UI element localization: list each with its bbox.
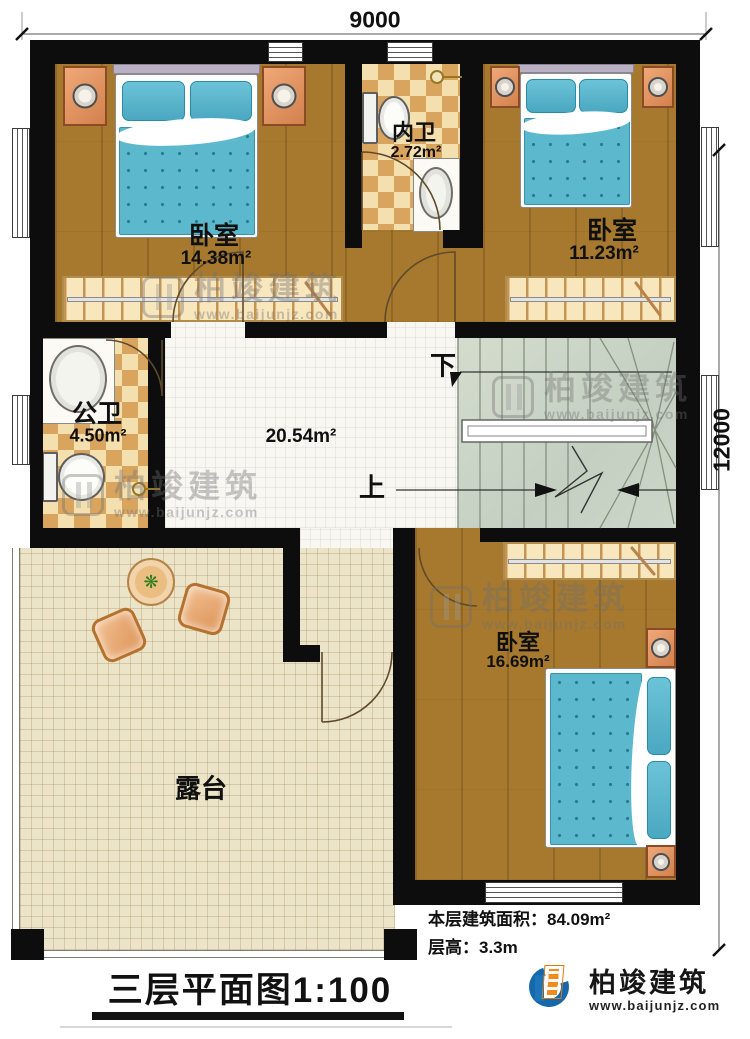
- wall-bedroom3-left: [393, 542, 415, 905]
- bed2: [520, 73, 632, 208]
- lamp-icon: [652, 853, 670, 871]
- wall-bedroom3-top-a: [393, 528, 415, 542]
- title-underline-thin: [60, 1026, 452, 1028]
- bed3-blanket: [550, 673, 642, 845]
- bed1: [115, 74, 258, 238]
- stairs-up-label: 上: [359, 468, 385, 505]
- bedroom2-wardrobe: [505, 276, 676, 322]
- terrace-post-right: [384, 929, 417, 960]
- nightstand: [642, 66, 674, 108]
- brand-website: www.baijunjz.com: [589, 998, 720, 1013]
- nightstand: [646, 628, 676, 668]
- toilet-bowl: [58, 453, 105, 501]
- bedroom1-wardrobe: [62, 276, 343, 322]
- stairwell-floor: [458, 338, 676, 528]
- window: [701, 127, 719, 247]
- lamp-icon: [495, 77, 515, 97]
- window: [387, 42, 433, 62]
- toilet-tank: [362, 92, 378, 144]
- room-label-bedroom1: 卧室: [189, 216, 239, 252]
- bed1-pillow-left: [122, 81, 185, 121]
- room-area-hall: 20.54m²: [266, 426, 337, 448]
- terrace-parapet-left: [12, 548, 20, 958]
- room-area-publicbath: 4.50m²: [69, 426, 126, 447]
- window: [268, 42, 303, 62]
- inner-bath-sink: [419, 167, 453, 219]
- bed3-pillow-top: [647, 677, 671, 755]
- terrace-parapet-bottom: [12, 950, 416, 958]
- wall-left-upper: [30, 64, 55, 322]
- room-area-bedroom3: 16.69m²: [486, 652, 549, 672]
- room-label-bedroom2: 卧室: [587, 211, 637, 247]
- drawing-title: 三层平面图1:100: [88, 962, 412, 1013]
- lamp-icon: [272, 84, 297, 109]
- floor-plan: ❋: [0, 0, 750, 1039]
- brand-logo: 柏竣建筑 www.baijunjz.com: [527, 963, 720, 1019]
- bed2-pillow-right: [579, 79, 628, 113]
- bed2-headboard: [518, 64, 634, 73]
- lamp-icon: [651, 638, 671, 658]
- dimension-height: 12000: [709, 408, 736, 472]
- wall-terrace-top: [30, 528, 300, 548]
- title-underline: [92, 1012, 404, 1020]
- bed3: [545, 668, 676, 848]
- nightstand: [63, 66, 107, 126]
- room-area-bedroom2: 11.23m²: [569, 243, 639, 265]
- nightstand: [646, 845, 676, 878]
- room-area-innerbath: 2.72m²: [391, 144, 442, 162]
- wall-bedroom2-left: [460, 64, 483, 248]
- wall-corridor-bottom: [283, 645, 320, 662]
- terrace-post-left: [11, 929, 44, 960]
- wall-top: [30, 40, 700, 64]
- floor-height-note: 层高：3.3m: [428, 933, 518, 958]
- wall-bedroom3-top-b: [480, 528, 676, 542]
- wall-hall-top-b: [245, 322, 387, 338]
- wall-right: [676, 64, 700, 905]
- window: [485, 882, 623, 903]
- bed3-pillow-bottom: [647, 761, 671, 839]
- brand-logo-icon: [527, 963, 581, 1019]
- nightstand: [490, 66, 520, 108]
- brand-name: 柏竣建筑: [589, 969, 709, 999]
- bed2-pillow-left: [526, 79, 576, 113]
- bed1-headboard: [113, 64, 260, 74]
- toilet-tank: [42, 452, 58, 502]
- dimension-width: 9000: [349, 7, 400, 34]
- room-area-bedroom1: 14.38m²: [181, 248, 252, 270]
- nightstand: [262, 66, 306, 126]
- wall-publicbath-right: [148, 338, 165, 548]
- window: [12, 395, 30, 465]
- hall-floor: [165, 322, 458, 528]
- window: [12, 128, 30, 238]
- wall-hall-top-a: [30, 322, 171, 338]
- room-label-innerbath: 内卫: [392, 115, 436, 147]
- wall-hall-top-c: [455, 322, 676, 338]
- terrace-table: ❋: [127, 558, 175, 606]
- wall-corridor-left: [283, 548, 300, 650]
- floor-area-note: 本层建筑面积：84.09m²: [428, 905, 610, 930]
- room-label-terrace: 露台: [175, 769, 227, 806]
- lamp-icon: [73, 84, 98, 109]
- wall-left-lower: [30, 322, 43, 548]
- bed1-pillow-right: [190, 81, 252, 121]
- stairs-down-label: 下: [430, 346, 456, 383]
- bedroom3-wardrobe: [503, 542, 676, 580]
- wall-innerbath-left: [345, 64, 362, 248]
- lamp-icon: [648, 77, 668, 97]
